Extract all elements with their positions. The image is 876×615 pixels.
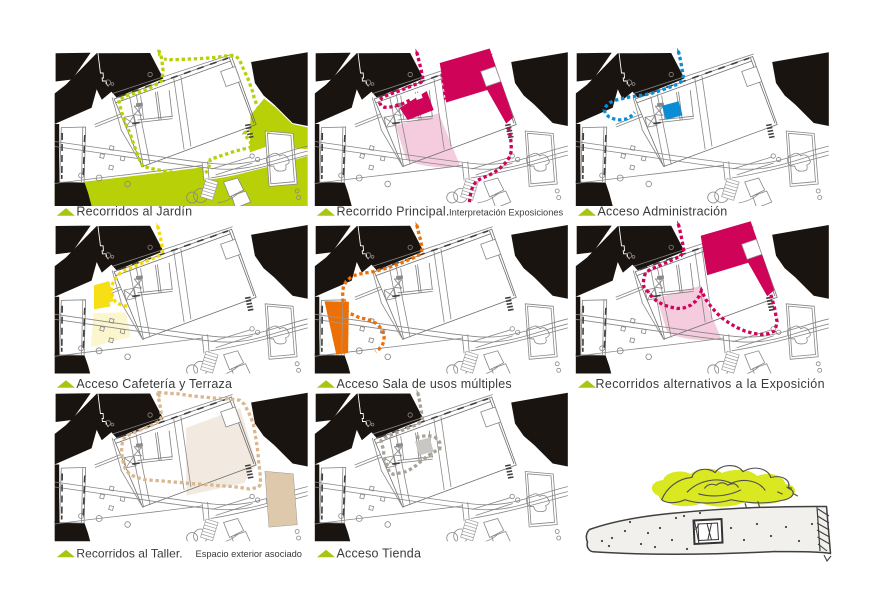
svg-text:Acceso Tienda: Acceso Tienda: [337, 546, 422, 560]
svg-text:Espacio exterior asociado: Espacio exterior asociado: [196, 549, 302, 559]
svg-text:Acceso Cafetería y Terraza: Acceso Cafetería y Terraza: [76, 377, 232, 391]
svg-text:Recorrido Principal.: Recorrido Principal.: [337, 205, 450, 219]
svg-text:Interpretación Exposiciones: Interpretación Exposiciones: [449, 207, 564, 217]
svg-text:Recorridos al Jardín: Recorridos al Jardín: [76, 205, 192, 219]
svg-text:Recorridos al Taller.: Recorridos al Taller.: [76, 546, 182, 560]
svg-text:Acceso Administración: Acceso Administración: [598, 205, 728, 219]
svg-text:Acceso Sala de usos múltiples: Acceso Sala de usos múltiples: [337, 377, 512, 391]
svg-text:Recorridos alternativos a la E: Recorridos alternativos a la Exposición: [596, 377, 825, 391]
